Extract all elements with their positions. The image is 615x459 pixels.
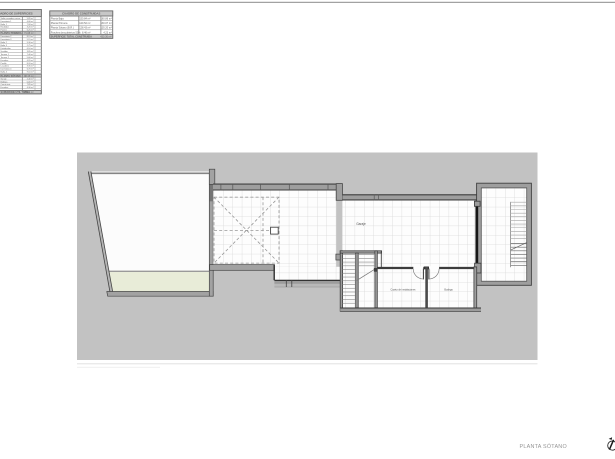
svg-text:8.46 m²: 8.46 m² <box>82 31 91 34</box>
svg-text:Escalera: Escalera <box>1 87 10 89</box>
svg-text:Garaje: Garaje <box>356 222 366 226</box>
svg-text:4.06 m²: 4.06 m² <box>27 20 34 23</box>
svg-text:Garaje: Garaje <box>1 78 8 80</box>
svg-text:8.91 m²: 8.91 m² <box>27 35 34 38</box>
svg-text:Baño 1: Baño 1 <box>1 23 8 26</box>
svg-text:Dormitorio 1: Dormitorio 1 <box>1 20 13 23</box>
svg-text:2.40 m²: 2.40 m² <box>27 77 34 80</box>
svg-text:430.36 m²: 430.36 m² <box>100 36 111 39</box>
svg-text:7.85 m²: 7.85 m² <box>27 83 34 86</box>
svg-text:Dormitorio 2: Dormitorio 2 <box>1 35 13 38</box>
svg-text:Planta Sótano (B.R.): Planta Sótano (B.R.) <box>51 27 74 30</box>
svg-text:4.23 m²: 4.23 m² <box>103 31 112 34</box>
svg-text:150.84 m²: 150.84 m² <box>79 18 90 21</box>
svg-text:Dormitorio 3: Dormitorio 3 <box>1 38 13 41</box>
svg-text:Baño 4: Baño 4 <box>1 71 8 74</box>
svg-text:9.10 m²: 9.10 m² <box>27 71 34 74</box>
svg-text:5.15 m²: 5.15 m² <box>27 38 34 41</box>
svg-text:PLANTA SÓTANO: PLANTA SÓTANO <box>520 443 567 450</box>
svg-text:6.25 m²: 6.25 m² <box>27 29 34 32</box>
svg-text:71.08 m²: 71.08 m² <box>24 32 34 35</box>
svg-text:160.86 m²: 160.86 m² <box>101 18 112 21</box>
svg-text:Vestidor: Vestidor <box>1 50 9 53</box>
svg-text:CUADRO DE SUPERFICIES: CUADRO DE SUPERFICIES <box>0 11 33 15</box>
svg-text:5.05 m²: 5.05 m² <box>27 80 34 83</box>
svg-text:9.30 m²: 9.30 m² <box>27 41 34 44</box>
svg-text:7.40 m²: 7.40 m² <box>27 53 34 56</box>
svg-text:Terraza 2: Terraza 2 <box>1 57 10 59</box>
svg-text:Recibidor: Recibidor <box>1 27 10 29</box>
svg-text:2.75 m²: 2.75 m² <box>27 44 34 47</box>
svg-text:3.85 m²: 3.85 m² <box>27 50 34 53</box>
svg-text:5.60 m²: 5.60 m² <box>27 56 34 59</box>
svg-text:Distribuidor: Distribuidor <box>1 47 11 50</box>
svg-text:4.30 m²: 4.30 m² <box>27 86 34 89</box>
svg-text:135.20 m²: 135.20 m² <box>101 27 112 30</box>
svg-text:Baño 2: Baño 2 <box>1 41 8 44</box>
svg-text:PLANTA SÓTANO: PLANTA SÓTANO <box>1 75 21 78</box>
svg-text:8.20 m²: 8.20 m² <box>27 62 34 65</box>
svg-text:Planta Primera: Planta Primera <box>51 22 68 25</box>
svg-text:Bodega: Bodega <box>1 81 9 83</box>
svg-text:Planta Baja: Planta Baja <box>51 18 64 21</box>
svg-text:Lavadero: Lavadero <box>1 66 10 68</box>
svg-text:Porches descubiertos 50%: Porches descubiertos 50% <box>51 31 82 34</box>
svg-text:246.9 m²: 246.9 m² <box>24 91 34 94</box>
svg-text:Baño 3: Baño 3 <box>1 44 8 47</box>
svg-text:4.95 m²: 4.95 m² <box>27 59 34 62</box>
svg-text:Bodega: Bodega <box>444 288 453 291</box>
svg-text:98.15 m²: 98.15 m² <box>24 75 34 78</box>
svg-text:CUADRO DE CONSTRUIDAS: CUADRO DE CONSTRUIDAS <box>62 12 100 16</box>
svg-text:7.98 m²: 7.98 m² <box>27 23 34 26</box>
svg-text:PLANTA PRIMERA: PLANTA PRIMERA <box>1 32 22 35</box>
svg-text:128.43 m²: 128.43 m² <box>79 27 90 30</box>
svg-text:6.10 m²: 6.10 m² <box>27 47 34 50</box>
svg-text:Salón comedor cocina: Salón comedor cocina <box>1 18 22 20</box>
svg-text:SUPERFICIE TOTAL CONSTRUIDA: SUPERFICIE TOTAL CONSTRUIDA <box>51 36 92 39</box>
svg-text:Terraza 1: Terraza 1 <box>1 54 10 56</box>
svg-text:Pasillo: Pasillo <box>1 63 8 65</box>
svg-text:Cuarto de instalaciones: Cuarto de instalaciones <box>391 288 417 291</box>
svg-text:120.52 m²: 120.52 m² <box>79 22 90 25</box>
svg-text:3.35 m²: 3.35 m² <box>27 65 34 68</box>
svg-text:3.20 m²: 3.20 m² <box>27 26 34 29</box>
svg-text:Cuarto inst.: Cuarto inst. <box>1 83 12 86</box>
svg-text:9.85 m²: 9.85 m² <box>27 17 34 20</box>
svg-text:Escalera: Escalera <box>1 60 10 62</box>
svg-text:130.07 m²: 130.07 m² <box>101 22 112 25</box>
svg-text:Dormitorio 4: Dormitorio 4 <box>1 68 13 71</box>
svg-text:6.70 m²: 6.70 m² <box>27 68 34 71</box>
